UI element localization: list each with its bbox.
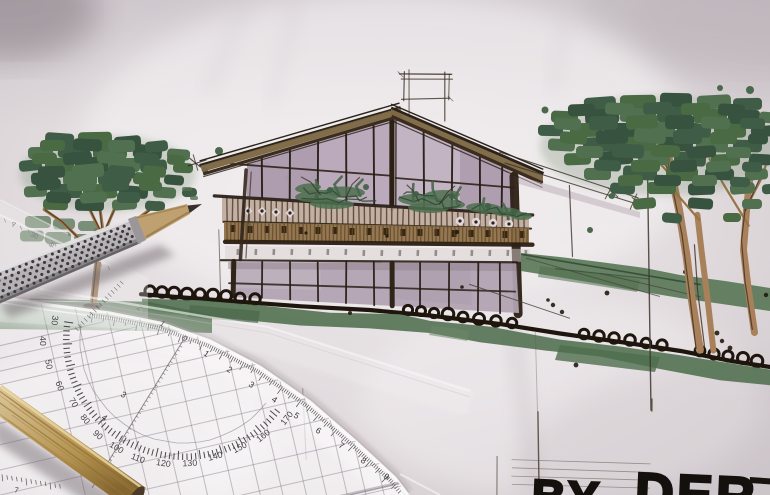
svg-text:50: 50	[43, 359, 55, 371]
svg-text:40: 40	[38, 336, 48, 346]
svg-text:30: 30	[49, 315, 60, 326]
svg-text:BY: BY	[531, 469, 603, 495]
svg-text:DER: DER	[634, 462, 760, 495]
svg-text:130: 130	[182, 458, 197, 469]
